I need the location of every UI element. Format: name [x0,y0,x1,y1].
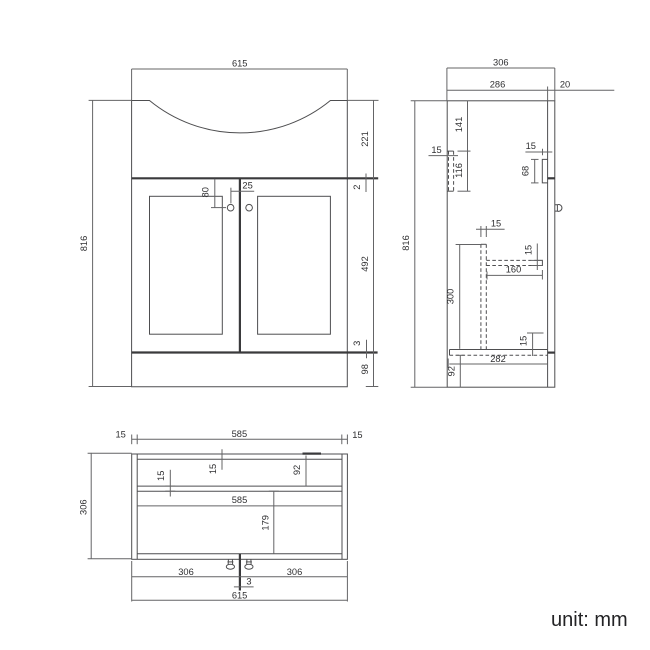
svg-text:141: 141 [454,117,464,133]
svg-text:306: 306 [79,499,89,515]
svg-text:300: 300 [445,289,455,305]
svg-text:15: 15 [208,464,218,474]
svg-text:286: 286 [490,80,506,90]
svg-text:816: 816 [401,235,411,251]
svg-text:116: 116 [454,163,464,178]
svg-text:492: 492 [360,256,370,272]
svg-text:25: 25 [242,181,252,191]
svg-text:3: 3 [352,341,362,346]
svg-text:unit: mm: unit: mm [551,609,628,631]
svg-text:15: 15 [519,336,529,346]
svg-text:68: 68 [521,166,531,176]
svg-text:585: 585 [232,429,248,439]
svg-text:15: 15 [431,145,441,155]
svg-text:615: 615 [232,591,248,601]
svg-text:15: 15 [156,471,166,481]
svg-text:15: 15 [116,430,126,440]
svg-text:20: 20 [560,80,570,90]
svg-text:98: 98 [360,364,370,374]
svg-text:585: 585 [232,495,248,505]
svg-text:92: 92 [292,465,302,475]
svg-text:80: 80 [200,187,210,197]
svg-text:306: 306 [287,567,303,577]
svg-text:15: 15 [526,141,536,151]
svg-text:15: 15 [491,218,501,228]
svg-text:15: 15 [523,245,533,255]
svg-text:92: 92 [446,366,456,376]
svg-text:160: 160 [506,265,522,275]
svg-text:221: 221 [360,131,370,147]
svg-text:306: 306 [493,57,509,67]
svg-text:15: 15 [352,430,362,440]
svg-text:3: 3 [246,576,251,586]
svg-text:306: 306 [178,567,194,577]
svg-text:816: 816 [79,236,89,252]
svg-text:615: 615 [232,58,248,68]
svg-text:282: 282 [490,354,506,364]
svg-text:179: 179 [261,515,271,531]
svg-text:2: 2 [352,185,362,190]
